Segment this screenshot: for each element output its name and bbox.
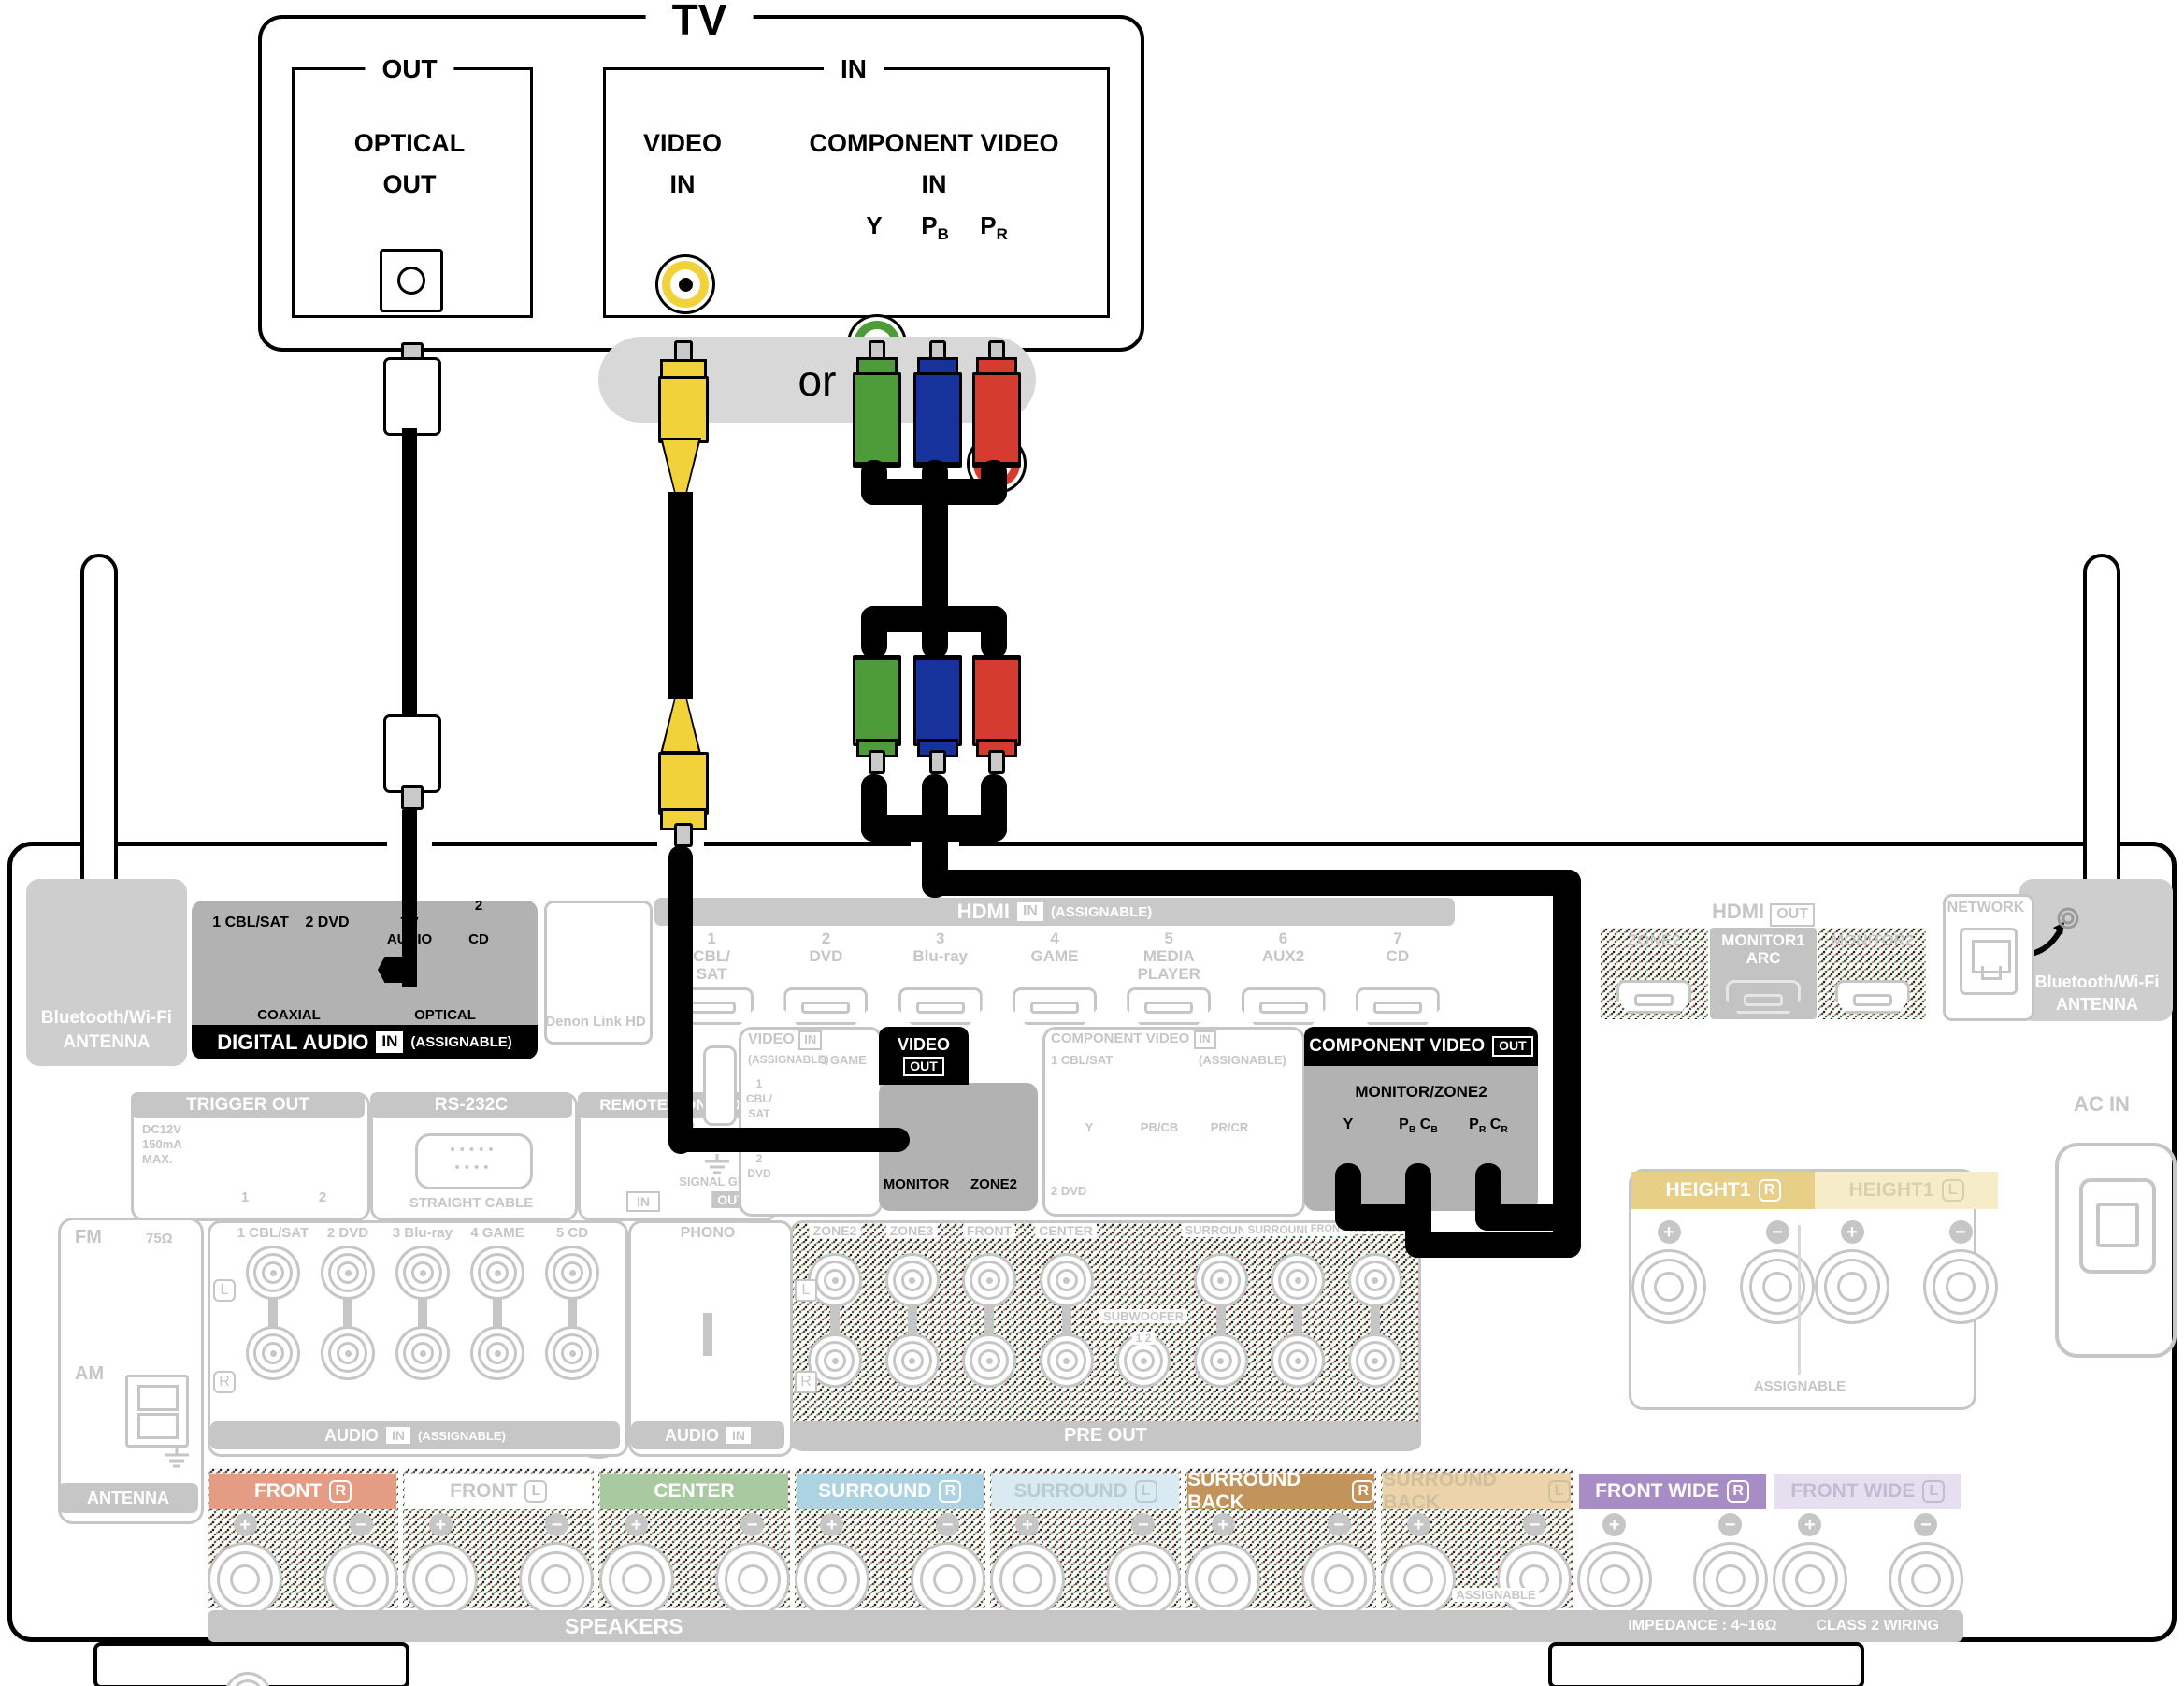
tv-pb-label: PB: [921, 211, 949, 244]
video-in-note: (ASSIGNABLE): [748, 1053, 829, 1066]
speaker-section: SURROUND BACKR: [1185, 1468, 1376, 1608]
video-in-header: VIDEO IN: [748, 1030, 822, 1050]
fm-ohm-label: 75Ω: [146, 1231, 173, 1246]
rs232c-note: STRAIGHT CABLE: [409, 1195, 534, 1211]
speaker-banner: FRONT WIDEL: [1774, 1474, 1961, 1509]
rca-taper-bottom: [660, 696, 701, 754]
rs232c-pins-row1: •••••: [418, 1140, 530, 1160]
speaker-post: [1301, 1542, 1376, 1617]
speaker-post: [1381, 1542, 1456, 1617]
hdmi-in-port: 5MEDIAPLAYER: [1112, 929, 1226, 1025]
bt-left-label-2: ANTENNA: [64, 1032, 151, 1053]
height1-assignable: ASSIGNABLE: [1750, 1378, 1849, 1394]
rs232c-pins-row2: ••••: [418, 1160, 530, 1175]
speakers-bar-label: SPEAKERS: [565, 1614, 683, 1639]
speaker-post: [599, 1542, 674, 1617]
comp-in-y-label: Y: [1085, 1120, 1094, 1134]
wifi-antenna-left: [80, 554, 118, 928]
comp-out-pb-label: PB CB: [1399, 1117, 1438, 1135]
hdmi-in-port: 3Blu-ray: [884, 929, 998, 1025]
remote-in-tag: IN: [626, 1191, 660, 1212]
ground-icon: [701, 1154, 733, 1176]
video-in-col1-num: 1: [756, 1077, 763, 1090]
comp-out-pr-label: PR CR: [1469, 1117, 1508, 1135]
coax1-label: 1 CBL/SAT: [212, 915, 288, 931]
composite-cable: [668, 492, 693, 699]
component-out-subtitle: MONITOR/ZONE2: [1355, 1083, 1487, 1102]
trigger-spec-1: DC12V: [142, 1122, 181, 1136]
speakers-bar: SPEAKERS IMPEDANCE : 4~16Ω CLASS 2 WIRIN…: [208, 1610, 1963, 1642]
speaker-post: [1923, 1249, 1998, 1324]
preout-col-center: [1028, 1253, 1106, 1388]
hdmi-port-label: 3Blu-ray: [912, 929, 968, 987]
coax2-label: 2 DVD: [305, 915, 349, 931]
optical-label: OPTICAL: [414, 1007, 476, 1023]
digital-audio-in-tag: IN: [376, 1031, 403, 1052]
preout-col-zone2: [797, 1253, 874, 1388]
speaker-post: [1106, 1542, 1181, 1617]
audio-jack-right: [395, 1326, 450, 1380]
audio-in-column: 3 Blu-ray: [385, 1225, 460, 1380]
or-label: or: [798, 355, 837, 406]
preout-col-zone3: [874, 1253, 952, 1388]
pre-out-bar: PRE OUT: [790, 1421, 1421, 1449]
height1-banner: HEIGHT1L: [1815, 1172, 1998, 1209]
hdmi-port-icon: [1726, 980, 1801, 1014]
bt-right-label-1: Bluetooth/Wi-Fi: [2035, 973, 2160, 992]
component-out-title: COMPONENT VIDEO: [1309, 1036, 1485, 1057]
hdmi-out-title: HDMI: [1712, 900, 1764, 923]
tv-in-label: IN: [824, 54, 884, 84]
minus-icon: [1949, 1220, 1973, 1244]
video-out-tab: VIDEO OUT: [879, 1027, 969, 1085]
preout-l-badge: L: [795, 1279, 817, 1302]
speaker-banner: FRONT WIDER: [1579, 1474, 1766, 1509]
tv-video-in-jack: [655, 254, 715, 314]
hdmi-port-icon: [898, 987, 983, 1025]
tv-component-label-2: IN: [922, 170, 947, 199]
audio-jack-left: [395, 1246, 450, 1300]
speaker-banner: SURROUND BACKL: [1383, 1474, 1570, 1509]
hdmi-port-label: 6AUX2: [1262, 929, 1304, 987]
comp-pin: [869, 750, 885, 774]
hdmi-out-zone-label: MONITOR1ARC: [1721, 931, 1804, 967]
component-in-note: (ASSIGNABLE): [1199, 1053, 1286, 1067]
comp-plug-red-top: [972, 372, 1021, 468]
audio-in-column: 5 CD: [535, 1225, 610, 1380]
hdmi-in-bar: HDMI IN (ASSIGNABLE): [654, 898, 1455, 926]
minus-icon: [740, 1513, 764, 1536]
plus-icon: [1407, 1513, 1430, 1536]
hdmi-port-icon: [1242, 987, 1326, 1025]
hdmi-port-icon: [1616, 980, 1691, 1014]
comp-plug-blue-bottom: [913, 655, 962, 746]
speakers-assignable: ASSIGNABLE: [1452, 1588, 1539, 1602]
hdmi-out-zone: MONITOR1ARC: [1710, 928, 1818, 1019]
hdmi-out-zone: ZONE2: [1601, 928, 1708, 1019]
optical-label-2: OUT: [383, 170, 437, 199]
tv-optical-port: [380, 249, 443, 312]
video-in-game-label: 3 GAME: [820, 1053, 867, 1067]
component-out-tag: OUT: [1492, 1036, 1533, 1057]
comp-out-y-label: Y: [1343, 1117, 1354, 1133]
hdmi-in-port: 2DVD: [769, 929, 883, 1025]
speaker-banner: SURROUNDL: [992, 1474, 1179, 1509]
phono-audio-in-bar: AUDIO IN: [631, 1421, 784, 1449]
denon-link-label: Denon Link HD: [545, 1014, 646, 1030]
network-label: NETWORK: [1947, 900, 2025, 916]
plus-icon: [234, 1513, 257, 1536]
antenna-bar: ANTENNA: [58, 1483, 198, 1513]
speaker-post: [1631, 1249, 1706, 1324]
speaker-banner: SURROUNDR: [797, 1474, 984, 1509]
tv-pr-label: PR: [980, 211, 1008, 244]
optical2-num: 2: [475, 898, 482, 914]
preout-col-surround-back: [1259, 1253, 1337, 1388]
hdmi-out-zone-label: ZONE2: [1628, 931, 1681, 949]
comp-bracket: [861, 606, 887, 658]
hdmi-in-ports: 1CBL/SAT 2DVD 3Blu-ray 4GAME: [654, 929, 1455, 1025]
hdmi-in-port: 6AUX2: [1226, 929, 1340, 1025]
hdmi-port-label: 2DVD: [809, 929, 842, 987]
audio-jack-left: [321, 1246, 375, 1300]
audio-jack-left: [545, 1246, 599, 1300]
video-out-tag: OUT: [903, 1057, 944, 1077]
speaker-banner: SURROUND BACKR: [1187, 1474, 1374, 1509]
speaker-banner: FRONTL: [405, 1474, 592, 1509]
component-in-row1-label: 1 CBL/SAT: [1051, 1053, 1113, 1067]
comp-trunk: [922, 460, 948, 619]
optical-plug-top: [383, 357, 441, 436]
comp-riser: [1553, 870, 1581, 1258]
audio-col-label: 4 GAME: [470, 1225, 524, 1246]
plus-icon: [1798, 1513, 1821, 1536]
plus-icon: [1602, 1513, 1626, 1536]
comp-tail-red-h: [1475, 1204, 1581, 1231]
preout-center-label: CENTER: [1035, 1223, 1097, 1238]
trigger-spec-3: MAX.: [142, 1152, 173, 1166]
tv-y-label: Y: [866, 211, 882, 240]
hdmi-in-tag: IN: [1017, 902, 1043, 922]
wifi-antenna-right: [2083, 554, 2120, 926]
am-terminal: [125, 1375, 189, 1448]
am-label: AM: [75, 1363, 104, 1385]
composite-run-vertical: [668, 845, 693, 1154]
video-in-row2-label: DVD: [747, 1167, 770, 1180]
speaker-sections: FRONTR FRONTL CENTER: [208, 1468, 1963, 1608]
coaxial-label: COAXIAL: [257, 1007, 321, 1023]
minus-icon: [350, 1513, 373, 1536]
jack-stem: [703, 1313, 712, 1356]
minus-icon: [1328, 1513, 1351, 1536]
preout-front-label: FRONT: [963, 1223, 1015, 1238]
audio-l-badge: L: [213, 1279, 236, 1302]
ethernet-port: [1960, 928, 2018, 995]
fm-label: FM: [75, 1227, 102, 1248]
speaker-post: [208, 1542, 282, 1617]
speaker-post: [1773, 1542, 1847, 1617]
hdmi-in-note: (ASSIGNABLE): [1051, 904, 1152, 920]
audio-in-column: 2 DVD: [310, 1225, 385, 1380]
plus-icon: [625, 1513, 648, 1536]
digital-audio-note: (ASSIGNABLE): [410, 1034, 511, 1050]
audio-in-bar: AUDIO IN (ASSIGNABLE): [210, 1421, 620, 1449]
rca-pin-bottom: [674, 823, 693, 847]
ac-inlet: [2055, 1143, 2177, 1358]
hdmi-port-icon: [783, 987, 868, 1025]
speaker-post: [990, 1542, 1065, 1617]
connection-diagram: TV OUT IN OPTICAL OUT VIDEO IN COMPONENT…: [0, 0, 2184, 1686]
height1-section: HEIGHT1R: [1631, 1172, 1815, 1324]
speaker-post: [1497, 1542, 1572, 1617]
impedance-label: IMPEDANCE : 4~16Ω: [1628, 1618, 1776, 1635]
hdmi-out-zones: ZONE2 MONITOR1ARC MONITOR2: [1601, 928, 1926, 1019]
minus-icon: [1914, 1513, 1937, 1536]
wiring-label: CLASS 2 WIRING: [1816, 1618, 1939, 1635]
composite-run-horizontal: [668, 1128, 910, 1152]
hdmi-port-icon: [1356, 987, 1440, 1025]
comp-plug-green-bottom: [853, 655, 901, 746]
optical-plug-tip-bottom: [401, 785, 424, 810]
speaker-post: [1185, 1542, 1260, 1617]
video-out-monitor-label: MONITOR: [884, 1176, 950, 1192]
video-in-row2-num: 2: [756, 1152, 763, 1165]
plus-icon: [1841, 1220, 1864, 1244]
comp-plug-red-bottom: [972, 655, 1021, 746]
hdmi-in-title: HDMI: [957, 900, 1010, 924]
phono-label: PHONO: [681, 1225, 736, 1242]
height1-divider: [1798, 1225, 1801, 1375]
comp-bracket: [922, 606, 948, 658]
height1-section: HEIGHT1L: [1815, 1172, 1998, 1324]
audio-jack-left: [246, 1246, 300, 1300]
speaker-post: [795, 1542, 869, 1617]
preout-subwoofer-nums: 1 2: [1132, 1332, 1156, 1345]
audio-in-column: 4 GAME: [460, 1225, 535, 1380]
speaker-section: SURROUNDL: [990, 1468, 1181, 1608]
comp-plug-blue-top: [913, 372, 962, 468]
preout-zone2-label: ZONE2: [810, 1223, 861, 1238]
minus-icon: [1131, 1513, 1155, 1536]
audio-jack-right: [246, 1326, 300, 1380]
hdmi-port-icon: [1835, 980, 1910, 1014]
optical-label-1: OPTICAL: [354, 129, 466, 158]
audio-col-label: 3 Blu-ray: [393, 1225, 453, 1246]
hdmi-out-tag: OUT: [1770, 903, 1815, 927]
tv-video-label-1: VIDEO: [643, 129, 722, 158]
comp-plug-green-top: [853, 372, 901, 468]
plus-icon: [820, 1513, 843, 1536]
audio-r-badge: R: [213, 1371, 236, 1393]
audio-jack-right: [321, 1326, 375, 1380]
rca-taper-top: [660, 438, 701, 496]
tv-out-label: OUT: [365, 54, 453, 84]
trigger-num-1: 1: [241, 1189, 249, 1205]
speaker-post: [1815, 1249, 1889, 1324]
optical-plug-bottom: [383, 714, 441, 793]
speaker-post: [403, 1542, 478, 1617]
speaker-section: FRONTR: [208, 1468, 398, 1608]
plus-icon: [1658, 1220, 1681, 1244]
hdmi-port-label: 7CD: [1387, 929, 1410, 987]
hdmi-port-icon: [1013, 987, 1097, 1025]
minus-icon: [1766, 1220, 1789, 1244]
hdmi-port-label: 4GAME: [1030, 929, 1078, 987]
comp-bottom-bus: [1405, 1232, 1581, 1258]
digital-audio-bar: DIGITAL AUDIO IN (ASSIGNABLE): [192, 1025, 538, 1059]
audio-jack-left: [470, 1246, 524, 1300]
video-in-col1-l2: SAT: [748, 1107, 769, 1120]
bt-right-label-2: ANTENNA: [2056, 995, 2138, 1015]
preout-subwoofer-label: SUBWOOFER: [1099, 1309, 1187, 1323]
rca-body-bottom: [658, 752, 709, 815]
comp-pin: [929, 750, 946, 774]
height1-banner: HEIGHT1R: [1631, 1172, 1815, 1209]
audio-col-label: 5 CD: [556, 1225, 588, 1246]
preout-col-surround: [1183, 1253, 1260, 1388]
hdmi-out-zone: MONITOR2: [1818, 928, 1926, 1019]
trigger-num-2: 2: [319, 1189, 326, 1205]
component-out-header: COMPONENT VIDEO OUT: [1304, 1027, 1538, 1066]
rca-body-top: [658, 376, 709, 443]
comp-top-run: [922, 870, 1581, 896]
hdmi-out-header: HDMI OUT: [1712, 900, 1815, 927]
preout-zone3-label: ZONE3: [886, 1223, 938, 1238]
hdmi-port-icon: [1127, 987, 1211, 1025]
speaker-post: [1577, 1542, 1652, 1617]
hdmi-in-port: 4GAME: [998, 929, 1112, 1025]
audio-in-columns: 1 CBL/SAT 2 DVD 3 Blu-ray 4 GAME: [236, 1225, 610, 1380]
video-out-title: VIDEO: [898, 1035, 950, 1055]
speaker-section: CENTER: [598, 1468, 789, 1608]
tv-video-label-2: IN: [670, 170, 696, 199]
speaker-post: [1889, 1542, 1963, 1617]
speaker-banner: CENTER: [600, 1474, 787, 1509]
gnd-screw-post: [703, 1045, 737, 1126]
audio-col-label: 1 CBL/SAT: [237, 1225, 309, 1246]
minus-icon: [1718, 1513, 1742, 1536]
video-out-zone2-label: ZONE2: [970, 1176, 1017, 1192]
audio-col-label: 2 DVD: [327, 1225, 368, 1246]
minus-icon: [936, 1513, 959, 1536]
preout-r-badge: R: [795, 1371, 817, 1393]
hdmi-port-label: 5MEDIAPLAYER: [1138, 929, 1200, 987]
component-in-row2-label: 2 DVD: [1051, 1184, 1086, 1198]
rs232c-port: ••••• ••••: [415, 1133, 533, 1189]
digital-audio-title: DIGITAL AUDIO: [217, 1030, 368, 1055]
speaker-post: [715, 1542, 790, 1617]
speaker-post: [911, 1542, 985, 1617]
ac-in-label: AC IN: [2074, 1092, 2130, 1117]
comp-in-pb-label: PB/CB: [1141, 1120, 1178, 1134]
speaker-section: FRONTL: [403, 1468, 594, 1608]
trigger-out-header: TRIGGER OUT: [131, 1092, 365, 1118]
minus-icon: [545, 1513, 568, 1536]
optical2-label: CD: [468, 931, 489, 947]
bt-left-label-1: Bluetooth/Wi-Fi: [41, 1008, 172, 1029]
comp-bracket: [981, 606, 1007, 658]
speaker-section: FRONT WIDEL: [1773, 1468, 1963, 1608]
audio-in-column: 1 CBL/SAT: [236, 1225, 310, 1380]
speaker-banner: FRONTR: [209, 1474, 396, 1509]
speaker-post: [1693, 1542, 1768, 1617]
plus-icon: [1212, 1513, 1235, 1536]
hdmi-in-port: 7CD: [1341, 929, 1455, 1025]
component-in-header: COMPONENT VIDEO IN: [1051, 1030, 1216, 1049]
plus-icon: [429, 1513, 453, 1536]
speaker-post: [323, 1542, 398, 1617]
comp-in-pr-label: PR/CR: [1211, 1120, 1248, 1134]
hdmi-port-label: 1CBL/SAT: [693, 929, 730, 987]
video-in-col1-l1: CBL/: [746, 1092, 772, 1105]
minus-icon: [1523, 1513, 1546, 1536]
speaker-post: [1740, 1249, 1815, 1324]
plus-icon: [1015, 1513, 1039, 1536]
speaker-post: [519, 1542, 594, 1617]
preout-col-front-wide: [1337, 1253, 1415, 1388]
speaker-section: FRONT WIDER: [1577, 1468, 1768, 1608]
audio-jack-right: [545, 1326, 599, 1380]
comp-pin: [988, 750, 1005, 774]
hdmi-out-zone-label: MONITOR2: [1831, 931, 1914, 949]
speaker-section: SURROUNDR: [795, 1468, 985, 1608]
trigger-spec-2: 150mA: [142, 1137, 182, 1151]
comp-tail-blue: [1405, 1163, 1431, 1258]
optical-cable: [402, 428, 417, 718]
rs232c-header: RS-232C: [370, 1092, 572, 1118]
audio-jack-right: [470, 1326, 524, 1380]
receiver-foot-right: [1548, 1642, 1864, 1686]
tv-title: TV: [646, 0, 754, 45]
ground-icon: [161, 1448, 193, 1470]
tv-component-label-1: COMPONENT VIDEO: [809, 129, 1058, 158]
preout-col-front: [951, 1253, 1028, 1388]
